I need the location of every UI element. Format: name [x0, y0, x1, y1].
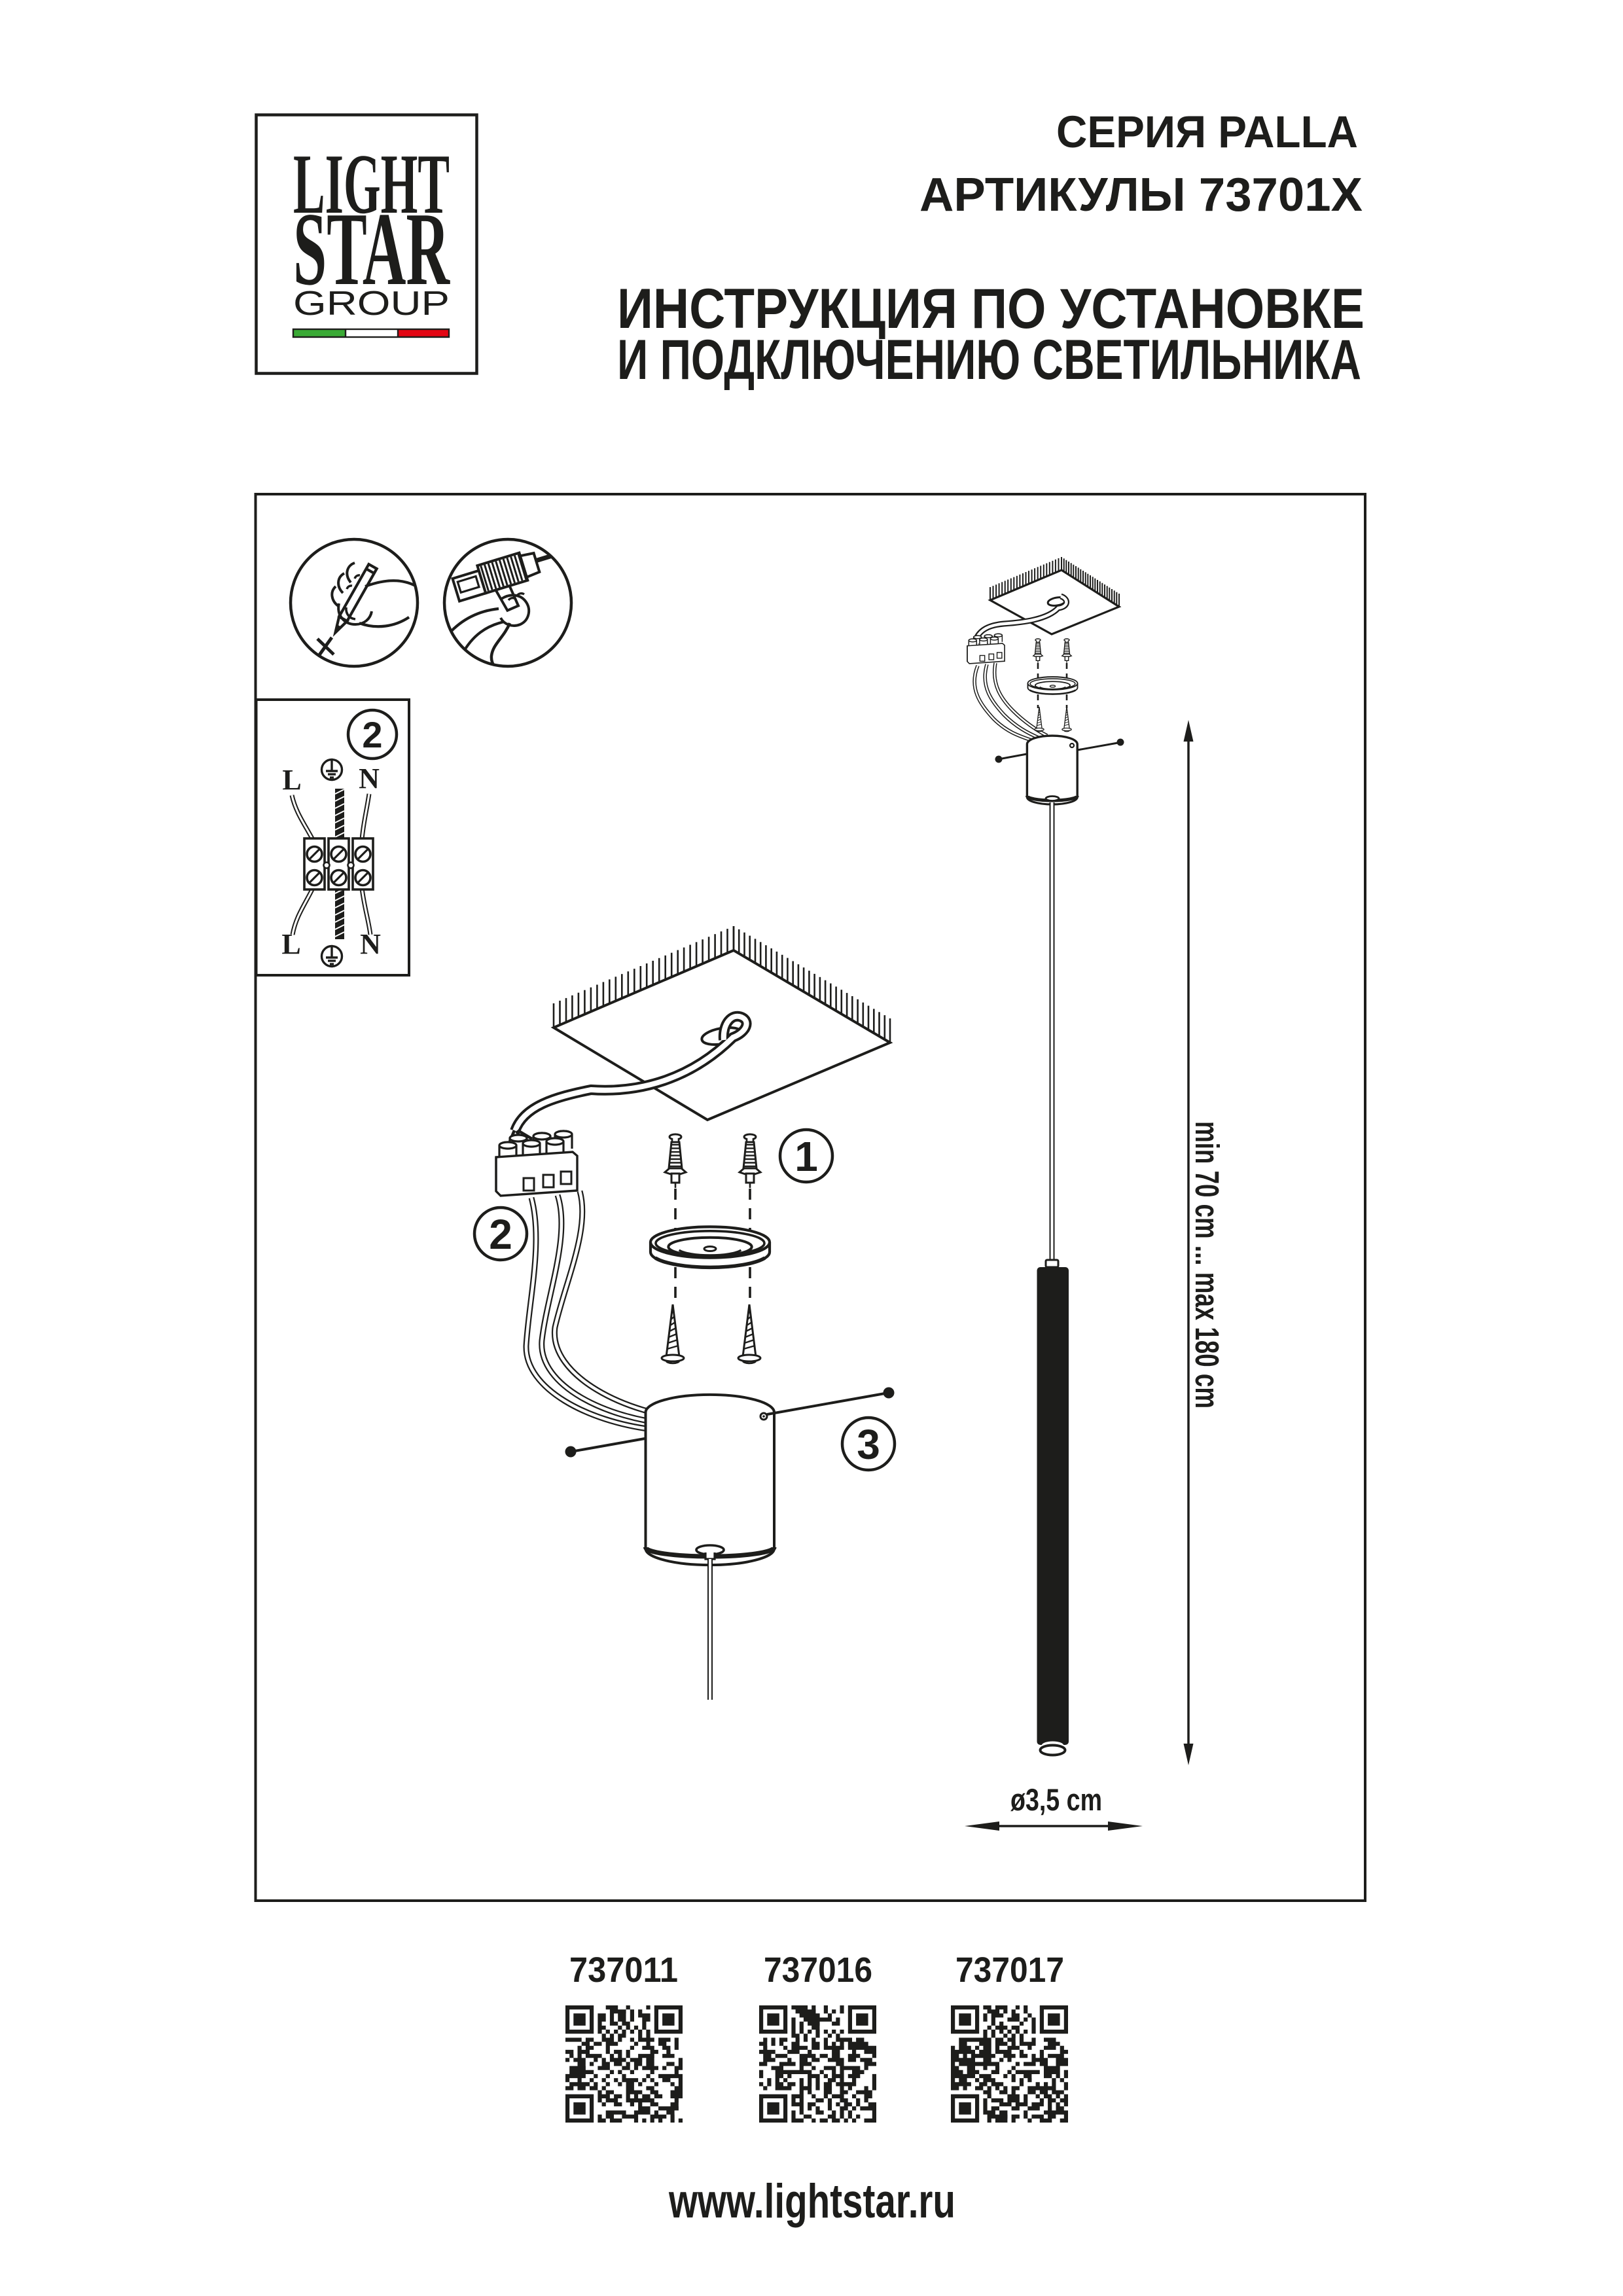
svg-text:737011: 737011 [569, 1950, 678, 1990]
svg-text:СЕРИЯ PALLA: СЕРИЯ PALLA [1056, 107, 1358, 157]
svg-text:N: N [360, 928, 381, 960]
svg-text:min 70 cm ... max 180 cm: min 70 cm ... max 180 cm [1188, 1121, 1226, 1408]
svg-text:N: N [359, 762, 380, 795]
svg-text:737017: 737017 [955, 1950, 1064, 1990]
svg-text:L: L [281, 928, 300, 960]
svg-text:И ПОДКЛЮЧЕНИЮ СВЕТИЛЬНИКА: И ПОДКЛЮЧЕНИЮ СВЕТИЛЬНИКА [617, 329, 1361, 391]
svg-text:www.lightstar.ru: www.lightstar.ru [668, 2175, 955, 2228]
svg-text:3: 3 [857, 1421, 880, 1468]
svg-text:ø3,5 cm: ø3,5 cm [1010, 1782, 1102, 1817]
svg-text:L: L [282, 764, 301, 796]
svg-text:2: 2 [489, 1211, 512, 1258]
svg-text:1: 1 [794, 1133, 818, 1180]
svg-text:737016: 737016 [764, 1950, 872, 1990]
svg-text:GROUP: GROUP [293, 285, 450, 323]
svg-text:2: 2 [362, 714, 382, 755]
svg-text:АРТИКУЛЫ 73701X: АРТИКУЛЫ 73701X [919, 169, 1363, 221]
